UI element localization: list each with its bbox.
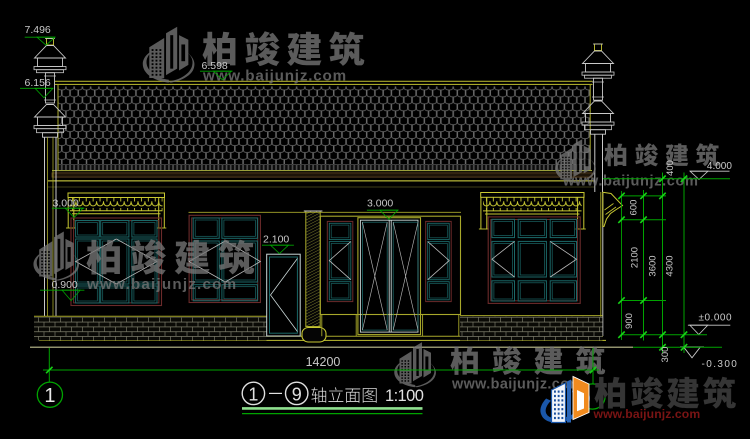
svg-text:1: 1 (248, 385, 258, 405)
svg-text:2100: 2100 (630, 247, 641, 268)
svg-text:4.000: 4.000 (707, 161, 732, 172)
svg-text:www.baijunjz.com: www.baijunjz.com (593, 407, 701, 421)
svg-text:2.100: 2.100 (263, 234, 289, 246)
svg-text:4300: 4300 (665, 255, 676, 276)
svg-text:6.156: 6.156 (25, 77, 51, 89)
svg-text:300: 300 (660, 347, 671, 363)
svg-text:-0.300: -0.300 (702, 359, 739, 370)
svg-text:3.000: 3.000 (53, 198, 79, 210)
svg-text:1:100: 1:100 (385, 387, 424, 405)
svg-text:6.598: 6.598 (202, 60, 228, 72)
svg-text:7.496: 7.496 (25, 24, 51, 36)
svg-text:±0.000: ±0.000 (699, 313, 733, 324)
svg-text:1: 1 (44, 385, 55, 407)
svg-text:600: 600 (629, 200, 640, 216)
svg-text:900: 900 (624, 313, 635, 329)
svg-text:www.baijunjz.com: www.baijunjz.com (562, 174, 699, 190)
svg-text:www.baijunjz.com: www.baijunjz.com (86, 276, 237, 293)
svg-text:9: 9 (292, 385, 302, 405)
svg-text:14200: 14200 (306, 355, 341, 369)
svg-text:3.000: 3.000 (367, 198, 393, 210)
svg-text:0.900: 0.900 (52, 279, 78, 291)
svg-text:400: 400 (665, 160, 676, 176)
svg-text:3600: 3600 (648, 255, 659, 276)
